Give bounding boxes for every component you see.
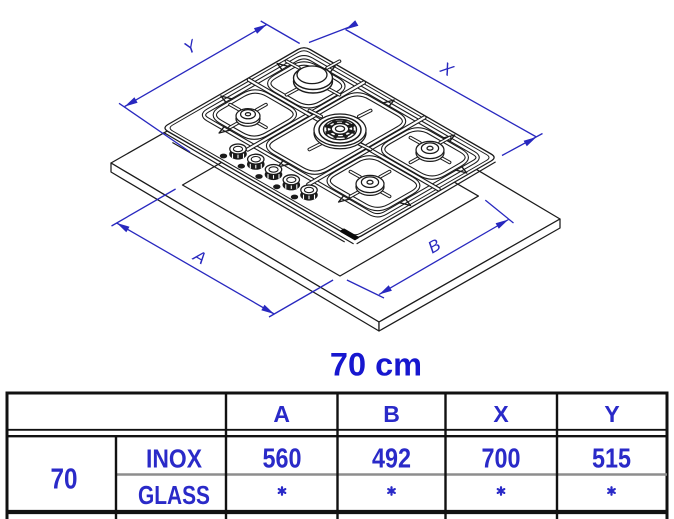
svg-text:70 cm: 70 cm xyxy=(330,347,422,383)
svg-text:X: X xyxy=(493,401,509,427)
svg-text:Y: Y xyxy=(181,35,202,58)
svg-text:X: X xyxy=(436,58,457,81)
svg-text:560: 560 xyxy=(263,442,302,473)
svg-text:GLASS: GLASS xyxy=(138,480,210,510)
svg-text:700: 700 xyxy=(482,442,521,473)
svg-text:A: A xyxy=(273,401,290,427)
svg-text:70: 70 xyxy=(51,464,78,496)
svg-text:A: A xyxy=(189,246,209,269)
svg-text:Y: Y xyxy=(604,401,619,427)
svg-text:INOX: INOX xyxy=(146,443,203,473)
svg-text:B: B xyxy=(383,401,400,427)
svg-text:492: 492 xyxy=(372,442,411,473)
svg-text:515: 515 xyxy=(592,442,631,473)
